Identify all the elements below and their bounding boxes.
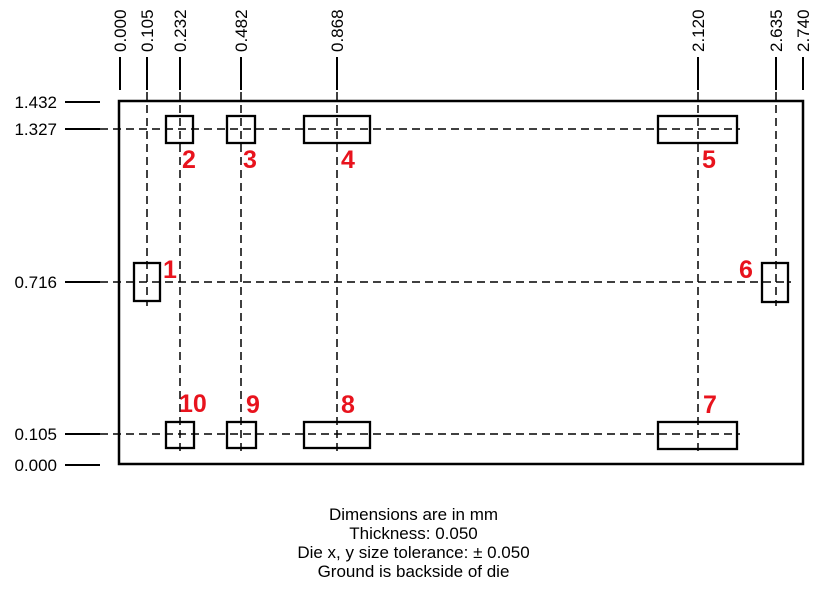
pad-number-label: 9 [246,391,260,419]
pad-number-label: 4 [341,146,355,174]
pad-number-label: 2 [182,146,196,174]
x-dim-label: 0.000 [111,9,130,52]
note-tolerance: Die x, y size tolerance: ± 0.050 [0,543,827,562]
note-ground: Ground is backside of die [0,562,827,581]
x-dim-label: 2.740 [794,9,813,52]
die-pad-layout-diagram: 0.0000.1050.2320.4820.8682.1202.6352.740… [0,0,827,593]
x-dim-label: 0.482 [232,9,251,52]
pad-number-label: 5 [702,146,716,174]
pad-number-label: 1 [163,256,177,284]
y-dim-label: 1.432 [14,93,57,112]
y-dim-label: 0.105 [14,425,57,444]
note-thickness: Thickness: 0.050 [0,524,827,543]
y-dim-label: 1.327 [14,120,57,139]
drawing-notes: Dimensions are in mm Thickness: 0.050 Di… [0,505,827,581]
y-dim-label: 0.000 [14,456,57,475]
y-dim-label: 0.716 [14,273,57,292]
note-units: Dimensions are in mm [0,505,827,524]
pad-number-label: 10 [179,390,207,418]
x-dim-label: 2.635 [767,9,786,52]
pad-number-label: 3 [243,146,257,174]
pad-number-label: 6 [739,256,753,284]
x-dim-label: 0.105 [138,9,157,52]
x-dim-label: 0.868 [328,9,347,52]
pad-number-label: 8 [341,391,355,419]
x-dim-label: 0.232 [171,9,190,52]
pad-number-label: 7 [703,391,717,419]
x-dim-label: 2.120 [689,9,708,52]
